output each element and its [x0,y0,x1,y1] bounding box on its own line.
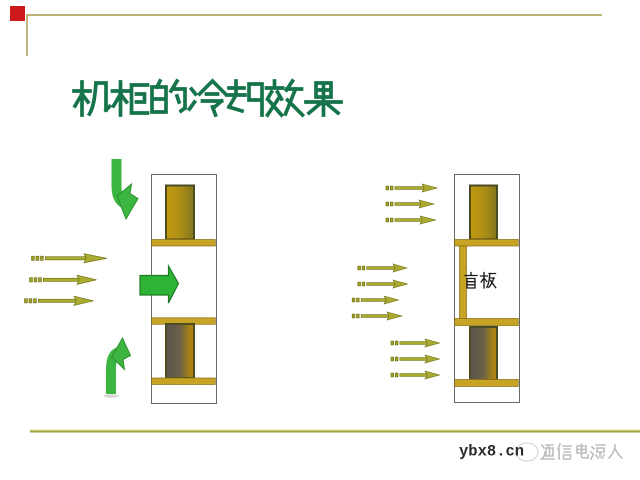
svg-text:ybx8.cn: ybx8.cn [459,443,524,461]
